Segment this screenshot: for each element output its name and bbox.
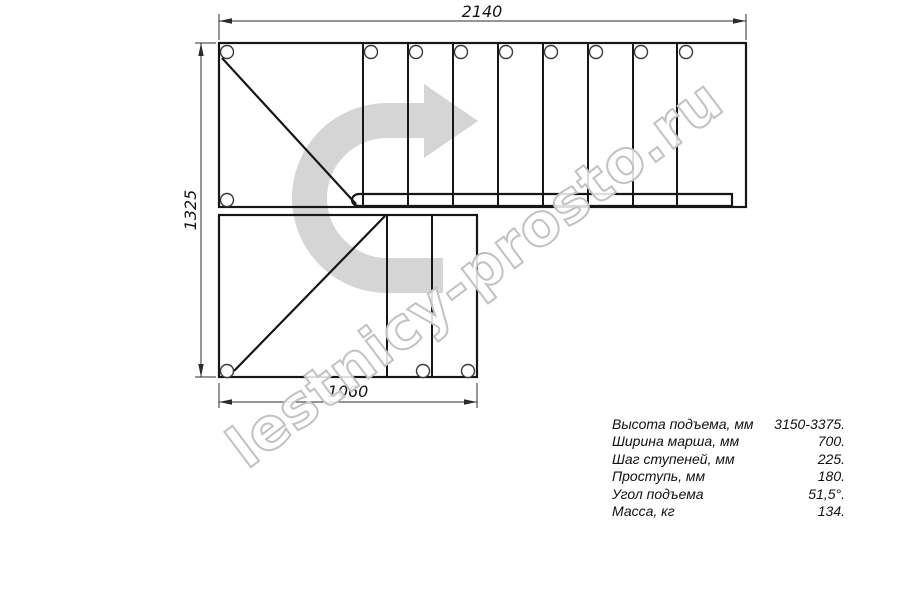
spec-row-height: Высота подъема, мм 3150-3375. xyxy=(612,416,845,433)
spec-value: 700. xyxy=(818,433,845,450)
spec-value: 51,5°. xyxy=(808,486,845,503)
spec-value: 134. xyxy=(818,503,845,520)
dimension-total-length-label: 2140 xyxy=(462,2,503,21)
spec-label: Проступь, мм xyxy=(612,468,705,485)
spec-label: Масса, кг xyxy=(612,503,675,520)
spec-row-angle: Угол подъема 51,5°. xyxy=(612,486,845,503)
dimension-arrowheads xyxy=(198,18,746,404)
spec-row-step-pitch: Шаг ступеней, мм 225. xyxy=(612,451,845,468)
spec-label: Ширина марша, мм xyxy=(612,433,739,450)
spec-label: Угол подъема xyxy=(612,486,704,503)
spec-value: 180. xyxy=(818,468,845,485)
spec-row-march-width: Ширина марша, мм 700. xyxy=(612,433,845,450)
spec-value: 3150-3375. xyxy=(774,416,845,433)
blueprint-page: 2140 1325 1060 lestnicy-prosto.ru Высота… xyxy=(0,0,900,600)
spec-label: Шаг ступеней, мм xyxy=(612,451,735,468)
spec-row-mass: Масса, кг 134. xyxy=(612,503,845,520)
spec-value: 225. xyxy=(818,451,845,468)
spec-label: Высота подъема, мм xyxy=(612,416,754,433)
dimension-total-width-label: 1325 xyxy=(181,190,200,231)
spec-row-tread: Проступь, мм 180. xyxy=(612,468,845,485)
dimension-lines xyxy=(195,14,746,408)
specs-table: Высота подъема, мм 3150-3375. Ширина мар… xyxy=(612,416,845,520)
